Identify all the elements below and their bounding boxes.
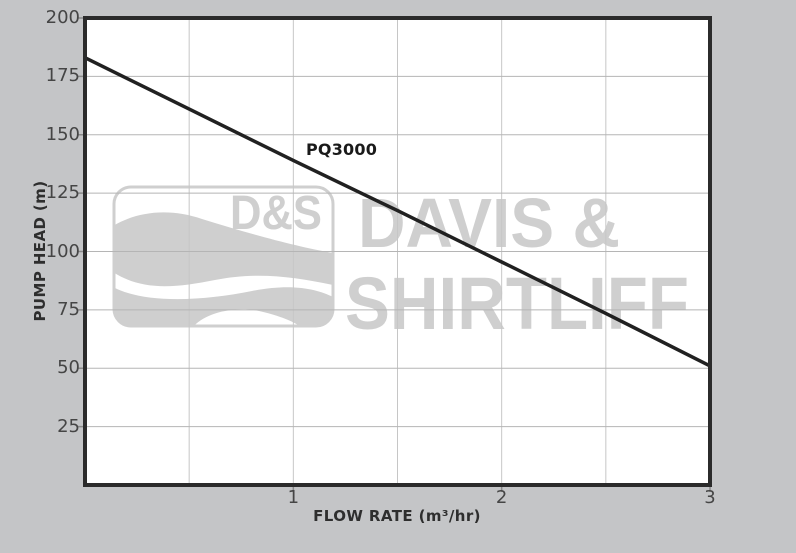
y-axis-title: PUMP HEAD (m) — [31, 181, 49, 322]
series-label-pq3000: PQ3000 — [306, 140, 377, 159]
chart-plot: D&S DAVIS & SHIRTLIFF — [0, 0, 796, 553]
pump-curve-chart: D&S DAVIS & SHIRTLIFF 255075100125150175… — [0, 0, 796, 553]
y-tick-label: 50 — [28, 358, 80, 378]
y-tick-label: 175 — [28, 66, 80, 86]
y-tick-label: 150 — [28, 125, 80, 145]
x-tick-label: 3 — [690, 488, 730, 508]
y-tick-label: 25 — [28, 417, 80, 437]
x-axis-title: FLOW RATE (m³/hr) — [313, 507, 481, 525]
y-tick-label: 200 — [28, 8, 80, 28]
watermark-wordmark-line2: SHIRTLIFF — [345, 262, 689, 345]
x-tick-label: 2 — [482, 488, 522, 508]
x-tick-label: 1 — [273, 488, 313, 508]
watermark-dns-monogram: D&S — [230, 187, 322, 240]
